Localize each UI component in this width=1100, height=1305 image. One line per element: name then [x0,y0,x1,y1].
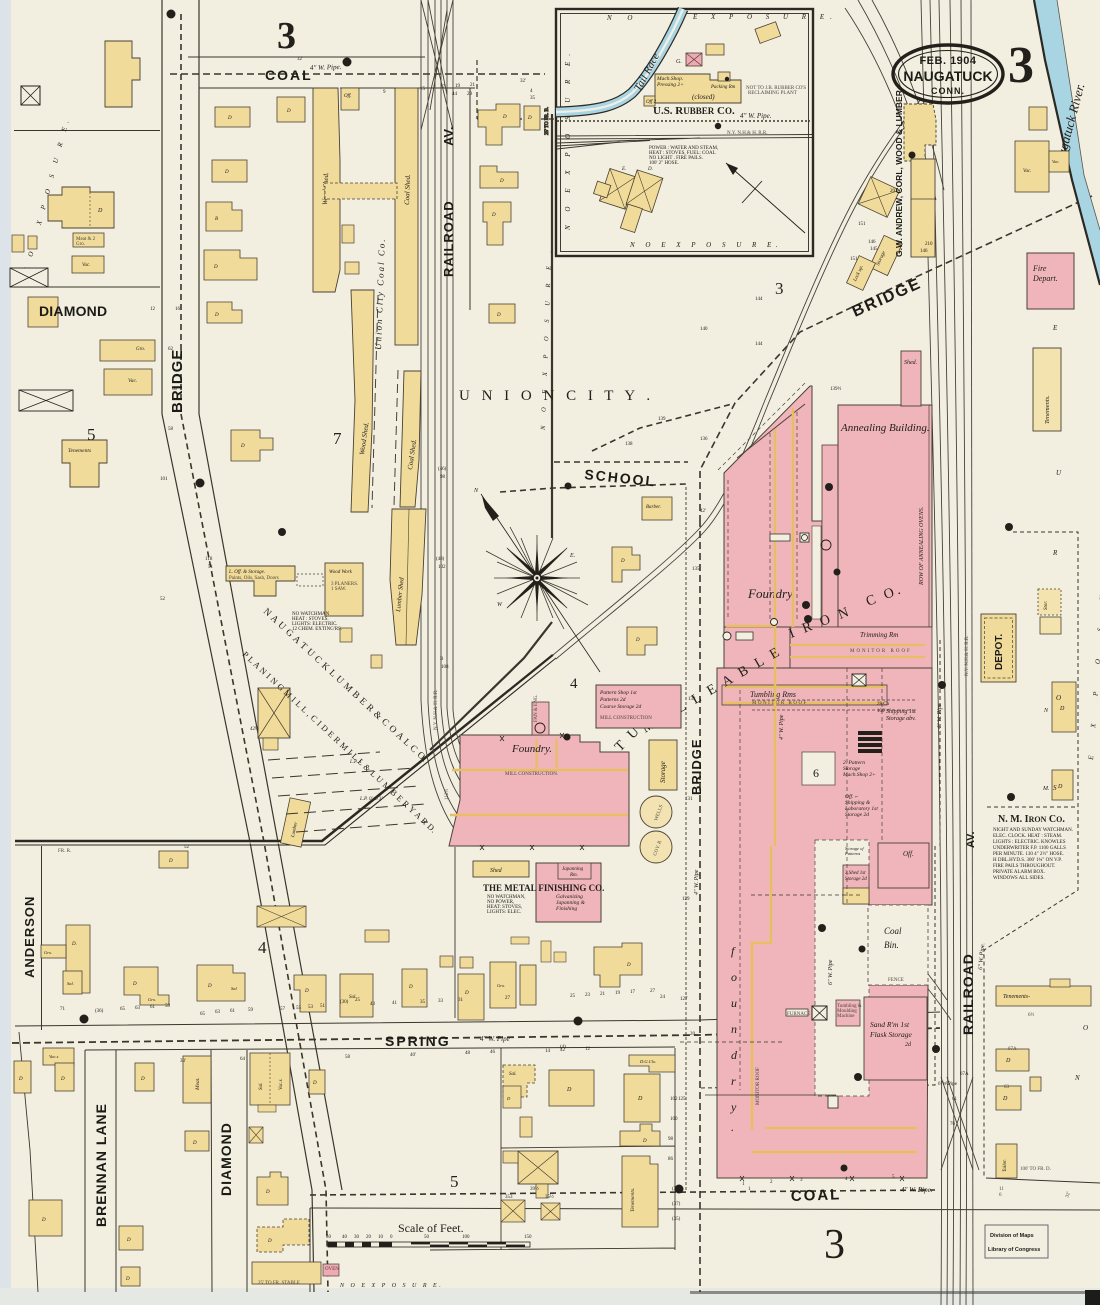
svg-text:2d: 2d [905,1042,912,1048]
svg-text:D.: D. [647,167,653,172]
svg-text:12: 12 [150,307,156,312]
svg-text:FR. R.: FR. R. [58,849,71,854]
svg-text:D: D [1005,1058,1011,1064]
svg-text:11: 11 [999,1187,1004,1192]
svg-text:Coarse Storage 2d: Coarse Storage 2d [600,704,642,710]
svg-text:4" W. Pipe: 4" W. Pipe [480,1035,510,1043]
svg-text:59: 59 [248,1008,254,1013]
svg-text:D: D [240,444,245,449]
svg-text:19: 19 [455,84,461,89]
svg-text:MONITOR ROOF: MONITOR ROOF [756,1067,761,1105]
svg-text:86: 86 [668,1157,674,1162]
svg-text:N O E X P O S U R E.: N O E X P O S U R E. [564,48,572,231]
svg-text:150: 150 [524,1235,532,1240]
svg-text:Sal: Sal [231,986,238,991]
svg-text:D.G.Clo.: D.G.Clo. [639,1059,656,1064]
svg-text:Stor.: Stor. [1044,601,1049,610]
svg-text:Machine: Machine [837,1014,855,1019]
svg-text:42½: 42½ [250,727,259,732]
svg-text:Coal: Coal [884,926,902,936]
svg-text:AV.: AV. [441,126,456,146]
svg-text:(closed): (closed) [692,93,715,101]
svg-text:68: 68 [172,387,178,392]
svg-text:MILL CONSTRUCTION: MILL CONSTRUCTION [600,716,652,721]
svg-text:(33): (33) [672,1187,681,1192]
svg-text:D: D [1002,1096,1008,1102]
svg-text:Tenements.: Tenements. [630,1188,636,1212]
svg-text:N.Y. N.H.& H. R.R.: N.Y. N.H.& H. R.R. [434,690,439,730]
svg-text:129: 129 [682,897,690,902]
svg-text:Scale of Feet.: Scale of Feet. [398,1221,464,1235]
svg-text:R: R [1052,549,1058,557]
svg-text:61: 61 [952,1097,958,1102]
svg-text:MILL CONSTRUCTION.: MILL CONSTRUCTION. [505,772,558,777]
svg-text:r: r [731,1074,736,1088]
svg-text:Vac.: Vac. [128,378,137,384]
svg-text:D: D [18,1077,23,1082]
svg-text:102: 102 [670,1097,678,1102]
svg-text:139: 139 [658,417,666,422]
svg-text:108: 108 [441,665,449,670]
svg-text:Storage abv.: Storage abv. [886,716,916,722]
svg-text:6: 6 [813,766,819,780]
svg-text:140: 140 [700,327,708,332]
svg-text:D: D [267,1239,272,1244]
svg-text:21: 21 [470,83,476,88]
svg-text:O: O [1056,694,1061,702]
svg-text:Gro.: Gro. [44,950,52,955]
svg-text:D: D [286,109,291,114]
svg-text:51: 51 [320,1004,326,1009]
svg-text:RAILROAD: RAILROAD [960,953,976,1035]
svg-text:4: 4 [570,676,578,692]
svg-text:Paints, Oils, Sash, Doors: Paints, Oils, Sash, Doors [229,576,279,581]
svg-text:25: 25 [355,998,361,1003]
svg-text:50: 50 [326,1235,332,1240]
svg-text:N.Y. N.H.& H. R.R.: N.Y. N.H.& H. R.R. [965,636,970,676]
svg-text:LIGHTS : ELECTRIC. KNOWLES: LIGHTS : ELECTRIC. KNOWLES [993,840,1066,845]
svg-text:Fire: Fire [1032,264,1047,273]
svg-text:D: D [1059,706,1065,712]
svg-text:D: D [125,1277,130,1282]
svg-text:151: 151 [850,257,858,262]
svg-text:E X P O S U R E.: E X P O S U R E. [692,13,838,21]
svg-text:B: B [215,217,218,222]
svg-text:100: 100 [670,1117,678,1122]
svg-text:17: 17 [440,85,446,90]
svg-text:(30): (30) [340,1000,349,1005]
svg-text:42': 42' [700,509,706,514]
svg-text:y: y [730,1100,737,1114]
svg-text:D: D [126,1238,131,1243]
svg-text:Foundry.: Foundry. [747,586,795,601]
svg-text:145: 145 [870,247,878,252]
svg-text:Gro.: Gro. [497,983,505,988]
svg-text:D: D [207,984,212,989]
svg-text:o: o [731,970,737,984]
svg-text:D: D [464,991,469,996]
svg-text:101: 101 [160,477,168,482]
svg-text:L.P. 0' to 3': L.P. 0' to 3' [359,797,383,802]
svg-text:D: D [312,1081,317,1086]
svg-text:58: 58 [345,1055,351,1060]
svg-text:35½: 35½ [545,1195,554,1200]
svg-text:MONITOR ROOF: MONITOR ROOF [752,701,808,706]
svg-text:61: 61 [230,1009,236,1014]
svg-text:46: 46 [490,1050,496,1055]
svg-text:CONN.: CONN. [931,86,965,96]
svg-text:D: D [227,116,232,121]
svg-text:Patterns: Patterns [844,851,860,856]
svg-text:N: N [1074,1074,1080,1082]
svg-text:Sal.: Sal. [259,1082,264,1090]
svg-text:OVEN: OVEN [325,1267,339,1272]
svg-text:(36): (36) [95,1009,104,1014]
svg-text:Annealing Building.: Annealing Building. [840,422,930,434]
svg-text:AV.: AV. [965,831,977,848]
svg-text:FIRE PAILS THROUGHOUT.: FIRE PAILS THROUGHOUT. [993,864,1055,869]
svg-text:D: D [635,638,640,643]
svg-text:U N I O N C I T Y .: U N I O N C I T Y . [459,388,654,404]
svg-text:4" W. Pipe.: 4" W. Pipe. [310,63,342,72]
svg-text:RECLAIMING PLANT: RECLAIMING PLANT [748,91,797,96]
svg-text:131: 131 [685,797,693,802]
svg-text:67A: 67A [1008,1047,1017,1052]
svg-text:133: 133 [688,697,696,702]
svg-text:D: D [213,265,218,270]
svg-text:Finishing: Finishing [555,906,577,912]
svg-text:27: 27 [505,996,511,1001]
svg-text:u: u [731,996,737,1010]
svg-text:52: 52 [184,845,190,850]
svg-text:Shed.: Shed. [904,360,917,366]
svg-text:D: D [527,116,532,121]
svg-text:.: . [731,1120,734,1134]
svg-text:139½: 139½ [830,387,842,392]
svg-text:Library of Congress: Library of Congress [988,1247,1040,1253]
svg-text:20: 20 [366,1235,372,1240]
svg-text:43: 43 [370,1002,376,1007]
svg-text:RAILROAD: RAILROAD [441,200,456,277]
svg-text:64: 64 [240,1057,246,1062]
svg-text:Storage 2d: Storage 2d [845,812,869,818]
svg-text:67A: 67A [960,1072,969,1077]
svg-text:127: 127 [680,997,688,1002]
svg-text:40': 40' [410,1053,416,1058]
svg-text:D: D [626,963,631,968]
svg-text:4" W. Pipe.: 4" W. Pipe. [740,112,772,120]
svg-text:Bin.: Bin. [884,940,899,950]
svg-text:35: 35 [530,96,536,101]
svg-text:D: D [224,170,229,175]
svg-text:353: 353 [505,1195,513,1200]
svg-text:DIAMOND: DIAMOND [39,303,107,319]
svg-text:Sal.: Sal. [67,981,74,986]
svg-text:58: 58 [168,427,174,432]
svg-text:D.: D. [71,942,77,947]
svg-text:D: D [192,1141,197,1146]
svg-text:G.W. ANDREW, CORL, WOOD & LUMB: G.W. ANDREW, CORL, WOOD & LUMBER. [894,88,904,257]
svg-text:151: 151 [858,222,866,227]
svg-text:(37): (37) [672,1202,681,1207]
svg-text:25' TO FR. STABLE: 25' TO FR. STABLE [258,1281,300,1286]
svg-text:63: 63 [1004,1085,1010,1090]
svg-text:4" W. Pipe: 4" W. Pipe [693,869,700,895]
svg-text:33': 33' [180,1059,186,1064]
svg-text:N. M. IRON CO.: N. M. IRON CO. [998,814,1065,825]
svg-text:Tumbling Rms: Tumbling Rms [750,690,796,699]
svg-text:4" W. Pipe.: 4" W. Pipe. [901,1186,933,1194]
svg-text:125: 125 [678,1097,686,1102]
svg-text:10: 10 [378,1235,384,1240]
svg-text:PRIVATE ALARM BOX.: PRIVATE ALARM BOX. [993,870,1045,875]
svg-text:Packing Rm: Packing Rm [710,85,736,90]
svg-text:3: 3 [824,1222,845,1268]
svg-text:40: 40 [342,1235,348,1240]
svg-text:(35): (35) [672,1217,681,1222]
svg-text:E.: E. [621,167,626,172]
svg-text:35: 35 [420,1000,426,1005]
svg-text:Off.: Off. [903,850,914,858]
svg-text:41: 41 [392,1001,398,1006]
svg-text:Division of Maps: Division of Maps [990,1233,1034,1239]
svg-text:30: 30 [354,1235,360,1240]
svg-text:Rm.: Rm. [569,873,578,878]
svg-text:D: D [1057,784,1063,790]
svg-text:52: 52 [160,597,166,602]
svg-text:136: 136 [700,437,708,442]
svg-text:Coal Shed.: Coal Shed. [403,174,412,205]
svg-text:S: S [1053,784,1057,792]
svg-text:PER MINUTE. 130 4" 2½" HOSE.: PER MINUTE. 130 4" 2½" HOSE. [993,852,1064,857]
svg-text:59: 59 [165,1004,171,1009]
svg-text:71: 71 [60,1007,66,1012]
svg-text:100' 2" HOSE.: 100' 2" HOSE. [649,161,679,166]
svg-text:Vac.s: Vac.s [49,1054,59,1059]
svg-text:D: D [41,1218,46,1223]
svg-text:Tenements.: Tenements. [1044,395,1051,424]
svg-text:D: D [566,1087,572,1093]
svg-text:51: 51 [208,565,214,570]
svg-text:BRIDGE: BRIDGE [169,349,186,413]
svg-text:M.: M. [1042,786,1050,792]
svg-text:ROW OF ANNEALING OVENS.: ROW OF ANNEALING OVENS. [919,507,925,586]
svg-text:D: D [132,982,137,987]
svg-text:d: d [731,1048,738,1062]
svg-text:Shipping 1st: Shipping 1st [886,709,916,715]
svg-text:G.: G. [676,59,682,65]
svg-text:Vac.s.: Vac.s. [279,1078,284,1090]
svg-text:Barber.: Barber. [646,505,661,510]
svg-text:O: O [1083,1024,1088,1032]
svg-text:27: 27 [650,989,656,994]
svg-text:19: 19 [615,991,621,996]
svg-text:15: 15 [420,87,426,92]
svg-text:WINDOWS ALL SIDES.: WINDOWS ALL SIDES. [993,876,1045,881]
svg-text:23: 23 [585,993,591,998]
svg-text:D: D [214,313,219,318]
svg-text:44: 44 [452,92,458,97]
svg-text:21: 21 [600,992,606,997]
svg-text:1 SAW.: 1 SAW. [331,587,346,592]
svg-text:53: 53 [308,1005,314,1010]
svg-text:12 CHEM. EXTING'RS.: 12 CHEM. EXTING'RS. [292,627,342,632]
svg-text:Japanning: Japanning [562,867,584,872]
svg-text:Patterns 2d: Patterns 2d [599,697,626,703]
svg-text:Shed: Shed [490,868,503,874]
svg-text:L. Off. & Storage.: L. Off. & Storage. [228,570,265,575]
svg-text:12: 12 [585,1047,591,1052]
svg-text:FENCE: FENCE [888,978,904,983]
svg-text:THE METAL FINISHING CO.: THE METAL FINISHING CO. [483,883,604,893]
svg-text:55: 55 [296,1006,302,1011]
svg-text:6"W.Pipe: 6"W.Pipe [938,1082,958,1087]
svg-text:Flask Storage: Flask Storage [869,1030,913,1039]
svg-text:D: D [140,1077,145,1082]
svg-text:25' TO FR. B.: 25' TO FR. B. [545,107,550,135]
svg-text:7: 7 [333,429,342,448]
svg-text:Pattern Shop 1st: Pattern Shop 1st [599,690,637,696]
svg-text:98: 98 [440,475,446,480]
svg-text:COAL: COAL [791,1186,842,1205]
svg-text:5: 5 [87,425,96,444]
svg-text:Foundry.: Foundry. [511,743,552,755]
svg-text:UNDERWRITER F.P. 1100 GALLS: UNDERWRITER F.P. 1100 GALLS [993,846,1066,851]
svg-text:Storage 2d: Storage 2d [845,877,867,882]
svg-text:Depart.: Depart. [1032,274,1058,283]
svg-text:112½: 112½ [445,789,450,800]
svg-text:D: D [60,1077,65,1082]
svg-text:118: 118 [205,557,213,562]
svg-text:100': 100' [877,709,886,714]
svg-text:201: 201 [890,189,898,194]
svg-text:Gro.: Gro. [136,347,145,352]
svg-text:N O E X P O S U R E.: N O E X P O S U R E. [339,1283,443,1289]
svg-text:Vac.: Vac. [1052,159,1060,164]
svg-text:COAL: COAL [265,67,313,83]
svg-text:Sand R'm 1st: Sand R'm 1st [870,1020,910,1029]
svg-text:144: 144 [755,342,763,347]
svg-text:Vac.: Vac. [1023,169,1031,174]
svg-text:4" W. Pipe: 4" W. Pipe [778,714,785,740]
svg-text:ANDERSON: ANDERSON [22,896,37,978]
svg-text:Vac.: Vac. [82,263,90,268]
svg-text:Storage: Storage [659,761,667,783]
svg-text:65: 65 [120,1007,126,1012]
svg-text:Wood Work: Wood Work [329,570,353,575]
svg-text:146: 146 [920,249,928,254]
svg-text:102: 102 [438,565,446,570]
svg-text:144: 144 [755,297,763,302]
svg-text:65: 65 [200,1012,206,1017]
svg-text:D: D [642,1139,647,1144]
svg-text:ELEC. CLOCK. HEAT : STEAM.: ELEC. CLOCK. HEAT : STEAM. [993,834,1062,839]
svg-text:SPRING: SPRING [385,1033,451,1049]
svg-text:H DBL.HYD.S. 300' 1¾" ON V.P.: H DBL.HYD.S. 300' 1¾" ON V.P. [993,858,1062,863]
svg-text:Sal.: Sal. [509,1072,517,1077]
svg-text:D: D [499,179,504,184]
svg-text:63: 63 [135,1006,141,1011]
svg-text:14: 14 [545,1049,551,1054]
svg-text:D: D [168,859,173,864]
svg-text:N O: N O [606,14,639,22]
svg-text:DEPOT.: DEPOT. [994,634,1005,670]
svg-text:3: 3 [775,279,784,298]
svg-text:25: 25 [570,994,576,999]
svg-text:32': 32' [297,57,303,62]
svg-text:100' TO FR. D.: 100' TO FR. D. [1020,1167,1051,1172]
svg-text:D: D [502,115,507,120]
svg-text:Gro.: Gro. [148,997,156,1002]
svg-text:BRENNAN LANE: BRENNAN LANE [93,1103,109,1227]
svg-text:U.S. RUBBER CO.: U.S. RUBBER CO. [653,105,735,117]
svg-text:D: D [620,559,625,564]
svg-text:Pressing 2+: Pressing 2+ [656,82,684,88]
svg-text:39½: 39½ [530,1187,539,1192]
svg-text:FEB. 1904: FEB. 1904 [919,55,976,67]
svg-text:Trimming Rm: Trimming Rm [860,631,898,639]
svg-text:Off.: Off. [344,94,352,99]
svg-text:N.Y. N.H.& H. R.R.: N.Y. N.H.& H. R.R. [727,131,767,136]
svg-text:98: 98 [668,1137,674,1142]
svg-text:31: 31 [458,998,464,1003]
svg-text:(48): (48) [436,557,445,562]
svg-text:Tailor.: Tailor. [1003,1159,1008,1172]
svg-text:20: 20 [690,1032,696,1037]
svg-text:3: 3 [1008,37,1034,94]
svg-text:32': 32' [918,1189,924,1194]
svg-text:E: E [1052,324,1058,332]
svg-text:16: 16 [175,307,181,312]
svg-text:(46): (46) [438,467,447,472]
svg-text:138: 138 [625,442,633,447]
svg-text:48: 48 [465,1051,471,1056]
svg-text:61: 61 [150,1005,156,1010]
svg-text:100: 100 [462,1235,470,1240]
svg-text:BRIDGE: BRIDGE [689,738,704,795]
svg-text:D: D [496,313,501,318]
svg-text:NAUGATUCK: NAUGATUCK [903,68,992,84]
svg-text:6½: 6½ [1028,1013,1035,1018]
svg-text:DIAMOND: DIAMOND [218,1122,234,1196]
svg-text:33: 33 [438,999,444,1004]
svg-text:32': 32' [520,79,526,84]
svg-text:76: 76 [950,1122,956,1127]
svg-text:28.Ch: 28.Ch [877,702,890,707]
svg-text:29: 29 [467,92,473,97]
svg-text:E.: E. [569,553,575,559]
svg-text:D: D [265,1190,270,1195]
svg-text:210: 210 [925,242,933,247]
svg-text:57: 57 [280,1007,286,1012]
svg-text:Tenements-: Tenements- [1003,994,1030,1000]
svg-text:3: 3 [277,15,296,57]
svg-text:17: 17 [630,990,636,995]
svg-text:FAN & ENG.: FAN & ENG. [534,694,539,722]
svg-text:50: 50 [424,1235,430,1240]
svg-text:6" W. Pipe: 6" W. Pipe [828,959,834,985]
svg-text:24: 24 [660,995,666,1000]
svg-text:D: D [304,989,309,994]
svg-text:D: D [637,1096,643,1102]
svg-text:63: 63 [215,1010,221,1015]
svg-text:146: 146 [868,240,876,245]
svg-text:5: 5 [450,1172,459,1191]
svg-text:D: D [97,208,103,214]
svg-text:n: n [731,1022,737,1036]
svg-text:4" W. Pipe: 4" W. Pipe [936,703,943,729]
svg-text:3.Shed 1st: 3.Shed 1st [845,871,866,876]
